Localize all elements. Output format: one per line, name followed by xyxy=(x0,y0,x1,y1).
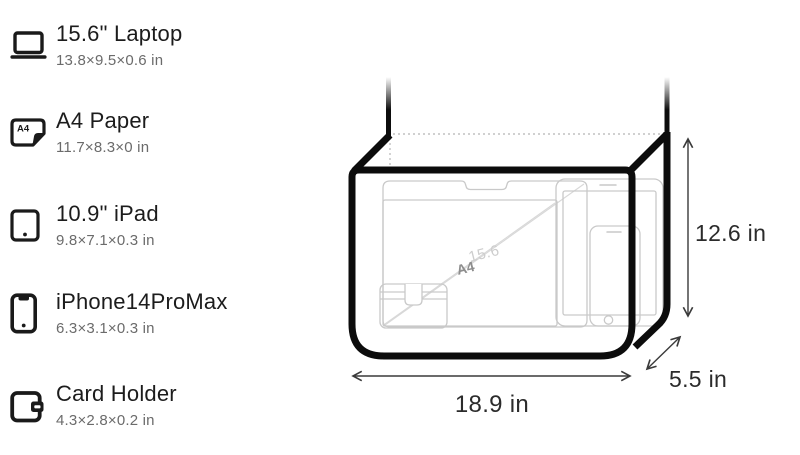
height-dimension-label: 12.6 in xyxy=(695,220,766,247)
bag-outline xyxy=(352,132,667,356)
bag-top-left-edge xyxy=(354,135,390,171)
bag-top-right-edge xyxy=(630,135,666,171)
bag-contents xyxy=(380,179,663,328)
depth-arrow xyxy=(647,337,680,369)
bag-dimensions-infographic: 15.6" Laptop 13.8×9.5×0.6 in A4 A4 Paper… xyxy=(0,0,800,455)
depth-dimension-label: 5.5 in xyxy=(669,366,727,393)
ipad-outline xyxy=(556,179,663,326)
bag-hidden-edges xyxy=(390,134,664,170)
width-dimension-label: 18.9 in xyxy=(440,391,544,419)
